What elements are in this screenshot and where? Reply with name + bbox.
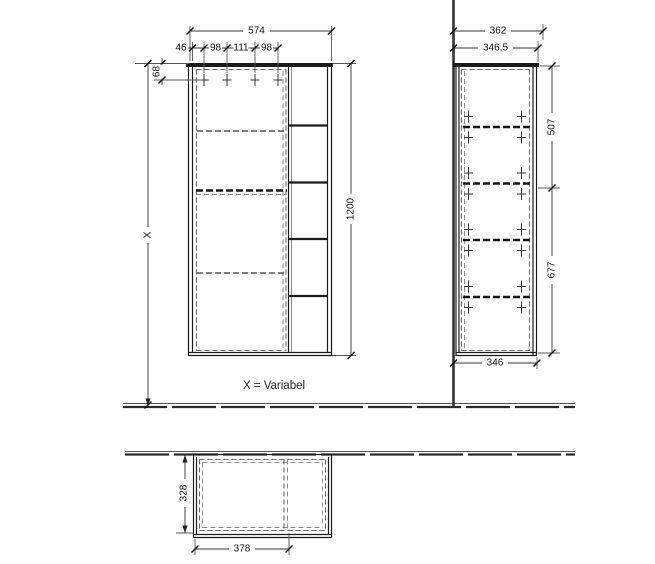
dim-side-upper-section: 507 xyxy=(538,63,560,192)
drawing-canvas: 574 46 98 111 98 68 xyxy=(0,0,655,564)
front-door-outline xyxy=(197,70,287,351)
front-height-label: 1200 xyxy=(346,197,357,220)
dim-side-depth-overall: 362 xyxy=(450,24,547,40)
front-offset-label-98a: 98 xyxy=(210,43,222,54)
plan-depth-label: 328 xyxy=(179,484,190,501)
side-top-panel xyxy=(453,63,539,67)
technical-drawing: 574 46 98 111 98 68 xyxy=(0,0,655,564)
wall-line-plan-view xyxy=(125,452,575,455)
front-top-hole-offset-label: 68 xyxy=(152,66,163,78)
front-view xyxy=(186,63,333,356)
dim-side-depth-body: 346,5 xyxy=(450,41,542,62)
front-variable-label: X xyxy=(143,231,154,238)
side-shelf-pin-holes xyxy=(464,111,526,314)
side-depth-body-label: 346,5 xyxy=(483,43,508,54)
plan-view xyxy=(194,455,332,538)
front-drill-holes xyxy=(200,74,283,86)
front-width-label: 574 xyxy=(248,26,265,37)
dim-side-bottom-depth: 346 xyxy=(450,357,541,369)
dim-plan-width: 378 xyxy=(192,533,293,555)
dim-front-height: 1200 xyxy=(332,60,357,359)
dim-side-lower-section: 677 xyxy=(538,188,560,357)
plan-width-label: 378 xyxy=(234,544,251,555)
front-offset-label-98b: 98 xyxy=(261,43,273,54)
dim-plan-depth: 328 xyxy=(176,455,194,533)
floor-line-elevation xyxy=(123,404,575,408)
front-offset-label-46: 46 xyxy=(175,43,187,54)
front-offset-label-111: 111 xyxy=(233,43,249,54)
side-hidden-outline xyxy=(462,70,530,351)
side-depth-overall-label: 362 xyxy=(490,26,507,37)
side-bottom-depth-label: 346 xyxy=(487,358,504,369)
side-view xyxy=(453,63,539,356)
side-lower-section-label: 677 xyxy=(547,261,558,278)
dim-front-variable-height: X xyxy=(142,60,154,409)
variable-note: X = Variabel xyxy=(243,380,305,392)
front-open-shelf-column xyxy=(289,67,328,352)
front-top-panel xyxy=(186,63,333,67)
side-upper-section-label: 507 xyxy=(547,118,558,135)
plan-hidden-outline xyxy=(200,460,326,531)
